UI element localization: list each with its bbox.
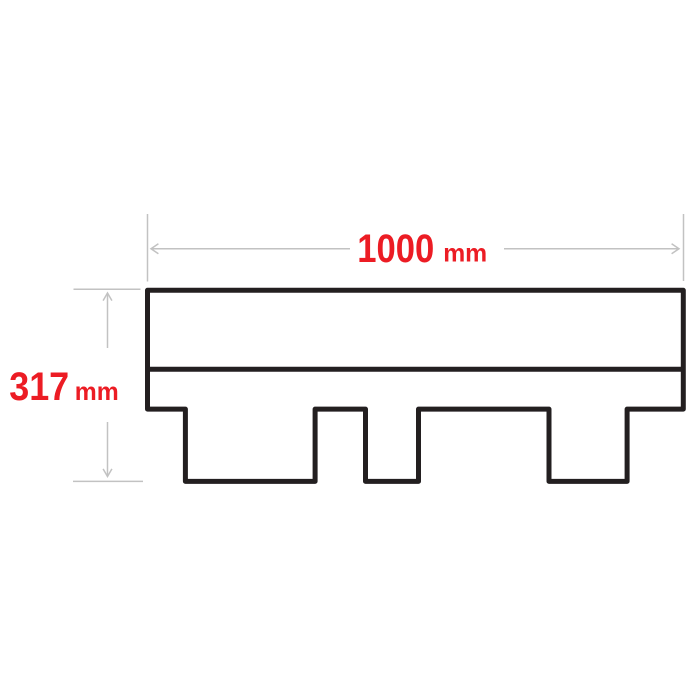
svg-text:mm: mm — [443, 240, 487, 268]
svg-text:mm: mm — [75, 378, 119, 406]
svg-text:1000: 1000 — [357, 227, 434, 271]
svg-text:317: 317 — [9, 365, 69, 409]
